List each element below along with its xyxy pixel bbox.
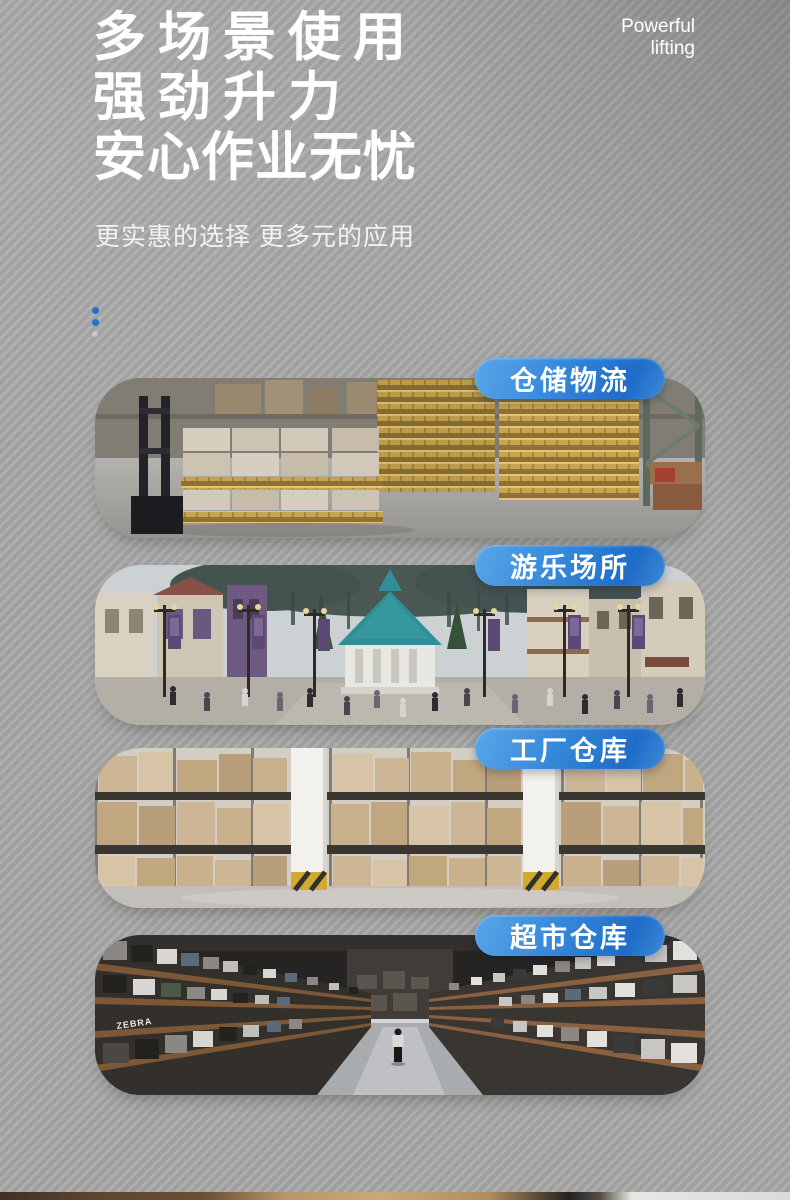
- title-line-2: 强劲升力: [93, 68, 418, 128]
- tagline-line-2: lifting: [621, 38, 695, 60]
- warehouse-logistics-illustration: [95, 378, 705, 538]
- subtitle: 更实惠的选择 更多元的应用: [95, 217, 415, 253]
- title-line-3: 安心作业无忧: [93, 128, 418, 188]
- scene-card-factory-warehouse: 工厂仓库: [95, 728, 705, 909]
- factory-warehouse-photo: [95, 748, 705, 908]
- scene-label-pill: 仓储物流: [475, 358, 665, 399]
- scene-label-pill: 超市仓库: [475, 915, 665, 956]
- supermarket-warehouse-illustration: ZEBRA: [95, 935, 705, 1095]
- scene-label-pill: 工厂仓库: [475, 728, 665, 769]
- scene-card-supermarket-warehouse: ZEBRA 超市仓库: [95, 915, 705, 1096]
- page-title: 多场景使用 强劲升力 安心作业无忧: [93, 8, 418, 188]
- dot-ghost-icon: [92, 331, 98, 337]
- dot-icon: [92, 307, 99, 314]
- scene-card-warehouse-logistics: 仓储物流: [95, 358, 705, 539]
- scene-label-pill: 游乐场所: [475, 545, 665, 586]
- tagline-english: Powerful lifting: [621, 16, 695, 60]
- supermarket-warehouse-photo: ZEBRA: [95, 935, 705, 1095]
- dot-icon: [92, 319, 99, 326]
- title-line-1: 多场景使用: [93, 8, 418, 68]
- accent-dots: [92, 307, 102, 342]
- next-section-preview-strip: [0, 1192, 790, 1200]
- amusement-park-photo: [95, 565, 705, 725]
- scene-card-amusement-park: 游乐场所: [95, 545, 705, 726]
- amusement-park-illustration: [95, 565, 705, 725]
- tagline-line-1: Powerful: [621, 16, 695, 38]
- factory-warehouse-illustration: [95, 748, 705, 908]
- warehouse-logistics-photo: [95, 378, 705, 538]
